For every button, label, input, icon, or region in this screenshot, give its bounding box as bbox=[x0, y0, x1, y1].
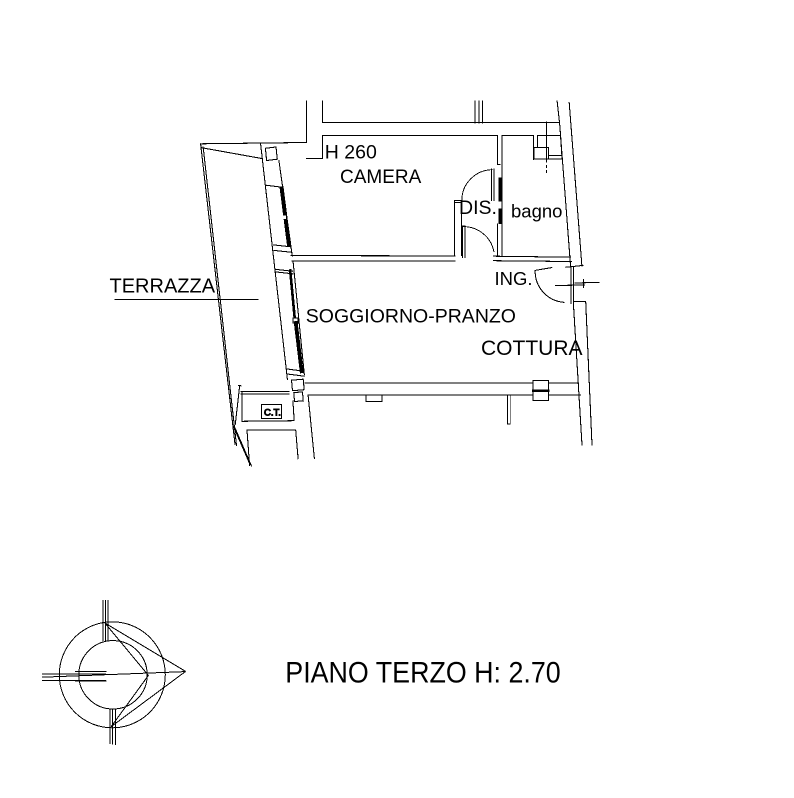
svg-text:bagno: bagno bbox=[511, 200, 562, 221]
svg-text:DIS.: DIS. bbox=[459, 197, 497, 219]
svg-text:PIANO TERZO H: 2.70: PIANO TERZO H: 2.70 bbox=[285, 657, 560, 690]
svg-text:C.T.: C.T. bbox=[264, 408, 281, 419]
svg-text:ING.: ING. bbox=[495, 268, 533, 289]
svg-text:SOGGIORNO-PRANZO: SOGGIORNO-PRANZO bbox=[306, 306, 516, 328]
svg-text:COTTURA: COTTURA bbox=[481, 337, 583, 360]
svg-text:CAMERA: CAMERA bbox=[340, 167, 422, 188]
svg-text:H 260: H 260 bbox=[325, 141, 377, 163]
svg-text:TERRAZZA: TERRAZZA bbox=[110, 276, 216, 298]
